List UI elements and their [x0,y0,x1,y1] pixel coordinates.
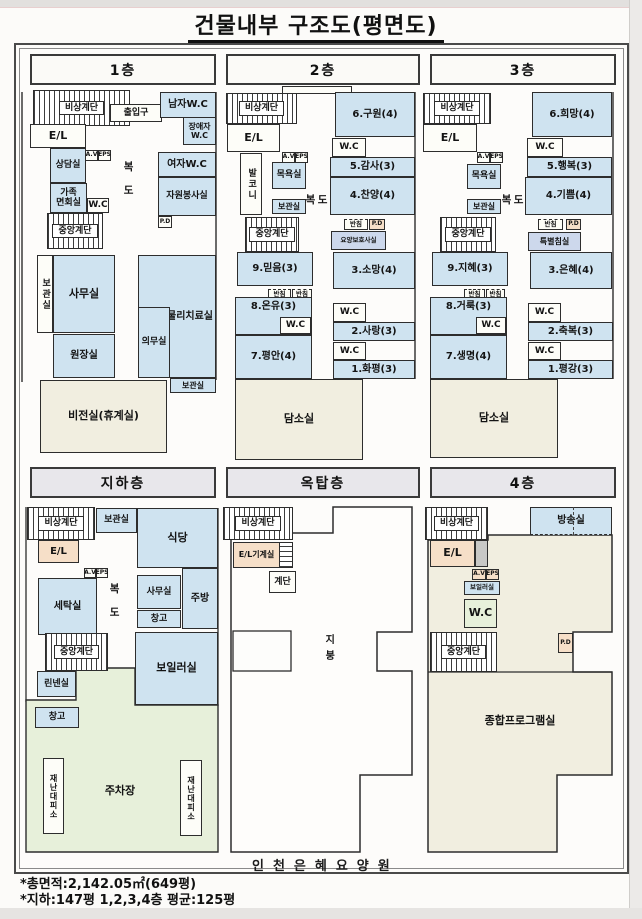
stairs-label: 비상계단 [59,101,104,115]
f2-room2: 2.사랑(3) [333,322,415,341]
b1-dining-room: 식당 [137,508,218,568]
stairs-label: 중앙계단 [249,227,294,241]
f3-room3: 3.은혜(4) [530,252,612,289]
f1-volunteer-room: 자원봉사실 [158,177,216,216]
f3-room4: 4.기쁨(4) [525,177,612,215]
f2-wc-top: W.C [332,138,366,157]
f2-storage: 보관실 [272,199,306,214]
header-floor1: 1층 [30,54,216,85]
f2-lounge: 담소실 [235,379,363,460]
footnote-floor-area: *지하:147평 1,2,3,4층 평균:125평 [20,889,235,908]
stairs-label: 비상계단 [434,516,479,530]
stairs-label: 중앙계단 [441,645,486,659]
f3-wc-room8: W.C [476,317,506,334]
f2-wc-room1: W.C [333,342,366,360]
facility-name-stamp: 인천은혜요양원 [252,855,399,874]
f2-corridor-label: 복도 [308,183,324,229]
f1-medical-room: 의무실 [138,307,170,378]
f2-elevator: E/L [227,124,280,152]
f1-entrance: 출입구 [110,104,162,122]
f1-family-room: 가족 면회실 [50,183,87,213]
f4-program-room-label: 종합프로그램실 [460,712,580,730]
stairs-label: 비상계단 [434,101,479,115]
stairs-label: 비상계단 [235,516,280,530]
header-floor2: 2층 [226,54,420,85]
f3-elevator: E/L [423,124,477,152]
f2-room9: 9.믿음(3) [237,252,313,286]
f2-bath-room: 목욕실 [272,162,306,189]
stairs-label: 비상계단 [239,101,284,115]
b1-linen-room: 린넨실 [37,671,76,697]
f1-director-room: 원장실 [53,334,115,378]
f3-central-stairs: 중앙계단 [440,217,496,252]
f2-wc-room8: W.C [280,317,311,334]
b1-boiler-room: 보일러실 [135,632,218,705]
f2-room7: 7.평안(4) [235,335,312,379]
f3-room7: 7.생명(4) [430,335,507,379]
f3-wc-room1: W.C [528,342,561,360]
stairs-label: 중앙계단 [445,227,490,241]
f3-room6: 6.희망(4) [532,92,612,137]
f4-eps-shaft: EPS [486,569,499,580]
roof-emergency-stairs: 비상계단 [223,507,293,540]
f1-pd-shaft: P.D [158,216,172,228]
b1-parking-label: 주차장 [90,782,150,800]
f4-broadcast-room: 방송실 [530,507,612,535]
f2-room4: 4.찬양(4) [330,177,415,215]
f4-central-stairs: 중앙계단 [430,632,497,672]
f1-storage-strip: 보관실 [37,255,53,333]
f3-special-bedroom: 특별침실 [528,232,581,251]
roof-stairs: 계단 [269,571,296,593]
b1-laundry-room: 세탁실 [38,578,97,635]
f3-banchim: 반침 [538,219,563,230]
f3-av-shaft: A.V [477,152,490,163]
f2-banchim: 반침 [344,219,368,230]
f3-room5: 5.행복(3) [527,157,612,177]
b1-office: 사무실 [137,575,181,609]
f1-men-wc: 남자W.C [160,92,216,118]
roof-stair-treads [280,542,293,568]
b1-shelter-right: 재난대피소 [180,760,202,836]
header-floor3: 3층 [430,54,616,85]
f1-office: 사무실 [53,255,115,333]
b1-kitchen: 주방 [182,568,218,629]
b1-corridor-label: 복도 [106,582,122,630]
f3-bath-room: 목욕실 [467,164,501,189]
f1-counseling-room: 상담실 [50,148,86,183]
stairs-label: 중앙계단 [54,645,99,659]
roof-elevator-machine-room: E/L기계실 [233,542,280,568]
f4-boiler-room: 보일러실 [464,581,500,595]
f3-room1: 1.평강(3) [528,360,613,379]
b1-elevator: E/L [38,540,79,563]
f1-eps-shaft: EPS [98,150,111,161]
f3-pd-shaft: P.D [566,219,581,230]
f4-broadcast-divider [573,507,574,535]
b1-shelter-left: 재난대피소 [43,758,64,834]
b1-eps-shaft: EPS [96,568,108,578]
f4-wc: W.C [464,599,497,628]
header-floor4: 4층 [430,467,616,498]
f4-av-shaft: A.V [472,569,486,580]
f1-corridor-label: 복도 [120,158,136,210]
f2-room6: 6.구원(4) [335,92,415,137]
f3-emergency-stairs: 비상계단 [423,93,491,124]
header-basement: 지하층 [30,467,216,498]
stairs-label: 중앙계단 [52,224,97,238]
f1-av-shaft: A.V [85,150,98,161]
b1-central-stairs: 중앙계단 [45,633,108,671]
header-rooftop: 옥탑층 [226,467,420,498]
f2-room3: 3.소망(4) [333,252,415,289]
b1-warehouse: 창고 [137,610,181,628]
f1-storage-small: 보관실 [170,378,216,393]
f4-floor-outline [428,535,612,852]
f3-storage: 보관실 [467,199,501,214]
roof-label: 지붕 [320,633,336,667]
f1-women-wc: 여자W.C [158,152,216,177]
f3-room9: 9.지혜(3) [432,252,508,286]
f3-wc-top: W.C [527,138,563,157]
f2-emergency-stairs: 비상계단 [226,93,297,124]
f1-central-stairs: 중앙계단 [47,213,103,249]
b1-emergency-stairs: 비상계단 [27,507,95,540]
f4-elevator: E/L [430,540,475,567]
f4-emergency-stairs: 비상계단 [425,507,488,540]
f2-pd-shaft: P.D [369,219,385,230]
f2-central-stairs: 중앙계단 [245,217,299,252]
f4-shaft-gray [475,540,488,567]
roof-stairwell-outline [233,631,291,671]
f2-balcony: 발코니 [240,153,262,215]
f3-eps-shaft: EPS [490,152,503,163]
f2-caregiver-room: 요양보호사실 [331,231,386,250]
f2-room5: 5.감사(3) [330,157,415,177]
f3-wc-room2: W.C [528,303,561,322]
b1-av-shaft: A.V [84,568,96,578]
f3-corridor-label: 복도 [504,183,520,229]
f1-elevator: E/L [30,124,86,148]
stairs-label: 비상계단 [38,516,83,530]
f3-lounge: 담소실 [430,379,558,458]
f1-disabled-wc: 장애자 W.C [183,117,216,145]
f1-wc: W.C [87,198,109,213]
f3-room2: 2.축복(3) [528,322,613,341]
b1-storage: 보관실 [96,508,137,533]
f2-wc-room2: W.C [333,303,366,322]
scanned-floorplan-sheet: 건물내부 구조도(평면도) 1층 2층 3층 지하층 옥탑층 4층 비상계단 출… [0,0,642,919]
b1-warehouse-lower: 창고 [35,707,79,728]
f2-room1: 1.화평(3) [333,360,415,379]
f4-pd-shaft: P.D [558,633,573,653]
f1-vision-room: 비전실(휴계실) [40,380,167,453]
